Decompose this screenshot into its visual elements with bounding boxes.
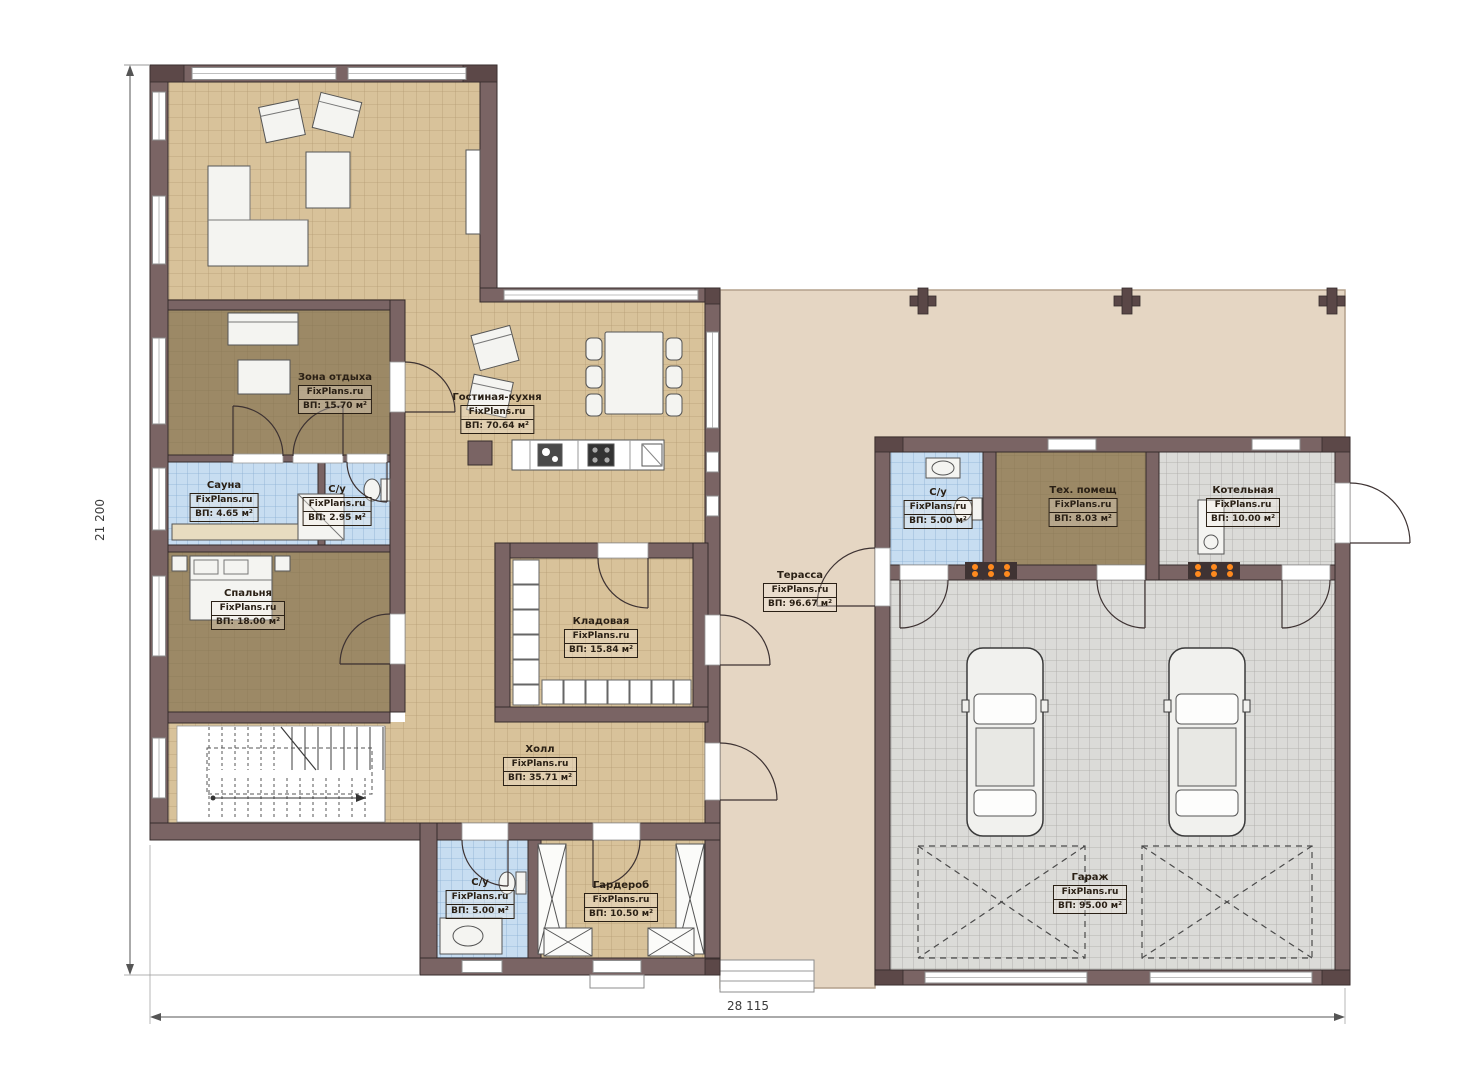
toilet (954, 497, 982, 521)
wall-niche (466, 150, 480, 234)
lounge-table (238, 360, 290, 394)
car-1 (962, 648, 1048, 836)
boiler (1198, 500, 1224, 554)
bed (172, 556, 290, 620)
armchair (467, 374, 514, 418)
floor-plan-canvas (0, 0, 1473, 1080)
bathroom-sink (926, 458, 960, 478)
dining-table (586, 332, 682, 416)
floor-plan-page: Зона отдыха FixPlans.ru ВП: 15.70 м² Гос… (0, 0, 1473, 1080)
dimension-height: 21 200 (93, 499, 107, 541)
lounge-sofa (228, 313, 298, 345)
toilet (499, 872, 526, 894)
coffee-table (306, 152, 350, 208)
bathroom-sink (440, 918, 502, 954)
kitchen-counter (512, 440, 664, 470)
armchair (259, 99, 306, 143)
dimension-width: 28 115 (727, 999, 769, 1013)
porch-steps (720, 960, 814, 992)
staircase (177, 726, 385, 822)
car-2 (1164, 648, 1250, 836)
sauna-bench (172, 524, 316, 540)
garage-floors (890, 452, 1335, 970)
shower-tray (298, 494, 344, 540)
